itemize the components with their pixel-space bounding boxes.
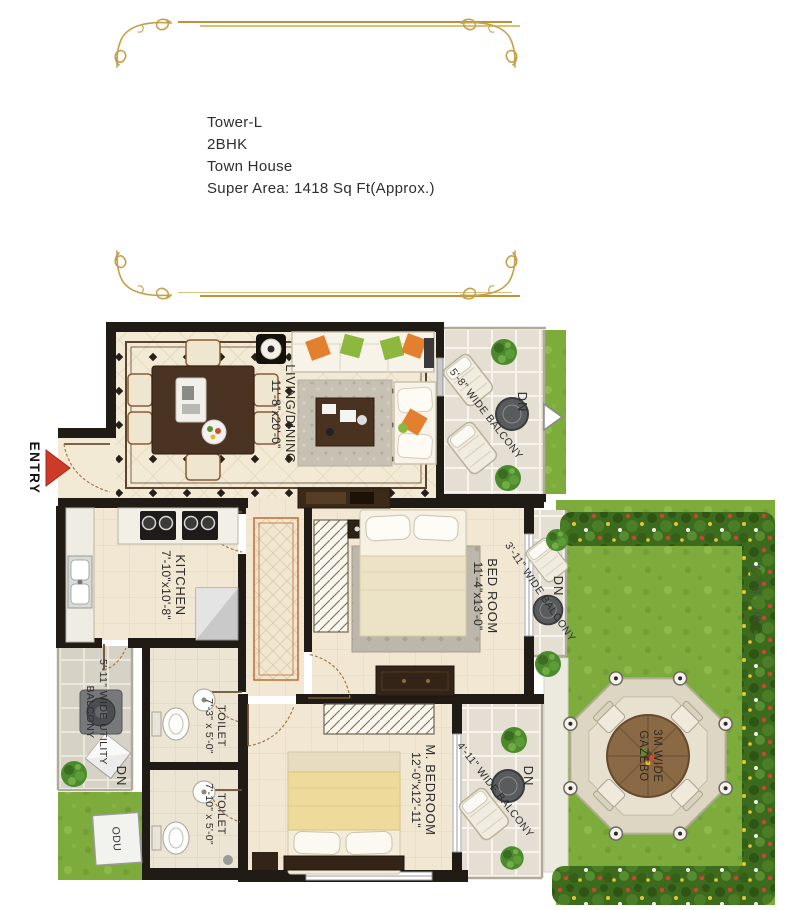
living-dining-size: 11'-8"x20'-0" [269, 380, 283, 449]
floor-drain [223, 855, 233, 865]
bedroom-name: BED ROOM [485, 558, 500, 634]
living-dining-name: LIVING/DINING [283, 364, 298, 464]
plant [495, 465, 521, 491]
svg-text:DN: DN [114, 766, 129, 787]
master-size: 12'-0"x12'-11" [409, 752, 423, 828]
wc [152, 708, 189, 740]
frame-line-top-2 [200, 25, 520, 27]
title-bhk: 2BHK [207, 134, 435, 156]
svg-text:ENTRY: ENTRY [27, 442, 42, 495]
sofa-top [292, 332, 434, 372]
side-table [252, 852, 278, 870]
kitchen-label: KITCHEN 7'-10"x10'-8" [159, 550, 188, 620]
dn-label-top: DN [515, 392, 530, 413]
title-block: Tower-L 2BHK Town House Super Area: 1418… [207, 112, 435, 200]
svg-text:DN: DN [515, 392, 530, 413]
bedroom-size: 11'-4"x13'-0" [471, 562, 485, 631]
title-tower: Tower-L [207, 112, 435, 134]
svg-text:5'-11" WIDE UTILITY: 5'-11" WIDE UTILITY [97, 659, 109, 765]
svg-text:DN: DN [521, 766, 536, 787]
corridor-rug [254, 518, 298, 680]
wardrobe [324, 704, 434, 734]
kitchen-counter [118, 508, 238, 544]
toilet1-label: TOILET 7'-3" x 5'-0" [203, 698, 227, 754]
svg-text:TOILET: TOILET [215, 705, 227, 747]
bedroom-label: BED ROOM 11'-4"x13'-0" [471, 558, 500, 634]
living-rug [298, 380, 392, 466]
kitchen-name: KITCHEN [173, 554, 188, 615]
plant [61, 761, 87, 787]
title-type: Town House [207, 156, 435, 178]
railing-label: M.S RAILING [750, 565, 765, 634]
frame-corner-flourish [458, 16, 520, 70]
master-bed [284, 752, 404, 874]
frame-line-bottom-2 [178, 292, 512, 294]
frame-corner-flourish [112, 16, 174, 70]
gazebo-label-line2: GAZEBO [637, 730, 649, 782]
fridge [196, 588, 238, 640]
svg-text:ODU: ODU [109, 826, 123, 852]
hedge-bottom [552, 866, 775, 905]
plant [546, 529, 568, 551]
wc [152, 822, 189, 854]
dn-label-bottom: DN [521, 766, 536, 787]
plant [500, 846, 523, 869]
entry-label: ENTRY [27, 442, 42, 495]
svg-text:7'-10" x 5'-0": 7'-10" x 5'-0" [203, 783, 215, 845]
dn-label-utility: DN [114, 766, 129, 787]
svg-text:7'-3" x 5'-0": 7'-3" x 5'-0" [203, 698, 215, 754]
dresser [376, 666, 454, 696]
garden-path [544, 658, 568, 872]
gazebo-label-line1: 3M WIDE [651, 729, 663, 782]
frame-line-bottom [200, 295, 520, 297]
plant [501, 727, 527, 753]
svg-text:TOILET: TOILET [215, 793, 227, 835]
dn-label-mid: DN [551, 576, 566, 597]
title-super-area: Super Area: 1418 Sq Ft(Approx.) [207, 178, 435, 200]
tv-unit [298, 488, 390, 508]
frame-line-top [178, 21, 512, 23]
ceiling-fan-icon [256, 334, 286, 364]
odu-label: ODU [109, 826, 123, 852]
svg-text:BALCONY: BALCONY [84, 686, 96, 739]
floor-plan: 3M WIDE GAZEBO M.S RAILING [0, 308, 800, 908]
floorplan-page: { "header": { "lines": ["Tower-L", "2BHK… [0, 0, 800, 910]
side-table [424, 338, 434, 368]
plant [535, 651, 561, 677]
kitchen-sink [68, 556, 92, 608]
master-name: M. BEDROOM [423, 744, 438, 835]
master-label: M. BEDROOM 12'-0"x12'-11" [409, 744, 438, 835]
plant [491, 339, 517, 365]
kitchen-size: 7'-10"x10'-8" [159, 550, 173, 620]
svg-text:DN: DN [551, 576, 566, 597]
bed [360, 510, 466, 636]
wardrobe [314, 520, 348, 632]
odu-unit: ODU [92, 812, 141, 865]
balcony-slider-door [437, 358, 443, 396]
frame-corner-flourish [458, 248, 520, 302]
frame-corner-flourish [112, 248, 174, 302]
sofa-right [394, 382, 436, 464]
